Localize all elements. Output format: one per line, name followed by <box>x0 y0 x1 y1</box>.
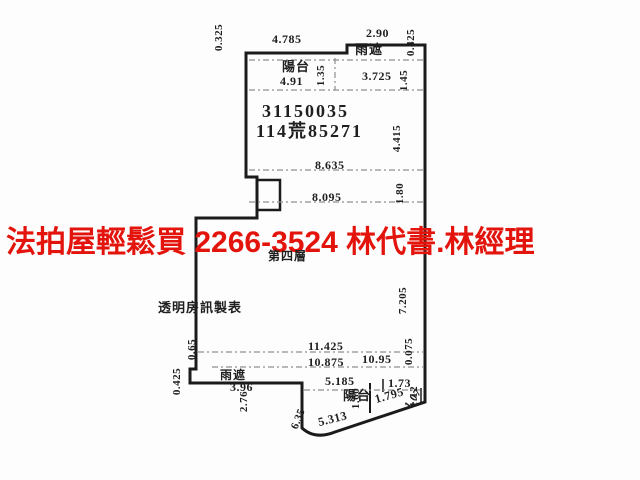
floor-label: 第四層 <box>268 250 307 263</box>
dim-bottom-inner-width: 10.875 <box>308 356 344 369</box>
canopy-top-label: 雨遮 <box>355 43 383 57</box>
wall-notch <box>257 180 280 210</box>
dim-balcony-top-width: 4.91 <box>280 75 303 88</box>
dim-mid-room-width: 8.095 <box>312 191 342 204</box>
balcony-top-label: 陽台 <box>282 60 310 74</box>
dim-top-left-side: 0.325 <box>213 24 225 51</box>
maker-label: 透明房訊製表 <box>158 301 242 315</box>
dim-top-width: 4.785 <box>272 33 302 46</box>
dim-balcony-bottom-width: 5.185 <box>325 375 355 388</box>
dim-canopy-top-inner-width: 3.725 <box>362 70 392 83</box>
dim-bottom-inner-width-2: 10.95 <box>362 353 392 366</box>
dim-left-bottom-side: 2.76 <box>238 391 250 412</box>
dim-balcony-bottom-depth: 1.60 <box>350 388 362 409</box>
parcel-number: 31150035 <box>262 102 349 122</box>
dim-left-bottom-jog: 0.425 <box>171 368 183 395</box>
dim-right-upper-side: 4.415 <box>391 125 403 152</box>
dim-bottom-total-width: 11.425 <box>308 340 343 353</box>
dim-top-right-side: 0.425 <box>405 29 417 56</box>
dim-canopy-top-width: 2.90 <box>366 27 389 40</box>
floorplan-image: 0.325 4.785 2.90 0.425 雨遮 陽台 4.91 1.35 3… <box>0 0 640 480</box>
dim-right-mid-side: 1.80 <box>394 183 406 204</box>
dim-right-bottom-small: 0.075 <box>403 338 415 365</box>
dim-canopy-top-depth: 1.45 <box>398 70 410 91</box>
dim-left-lower-small: 0.65 <box>186 339 198 360</box>
dim-balcony-top-depth: 1.35 <box>315 65 327 86</box>
dim-right-lower-side: 7.205 <box>397 287 409 314</box>
dim-upper-room-width: 8.635 <box>315 159 345 172</box>
area-number: 114荒85271 <box>256 122 363 142</box>
